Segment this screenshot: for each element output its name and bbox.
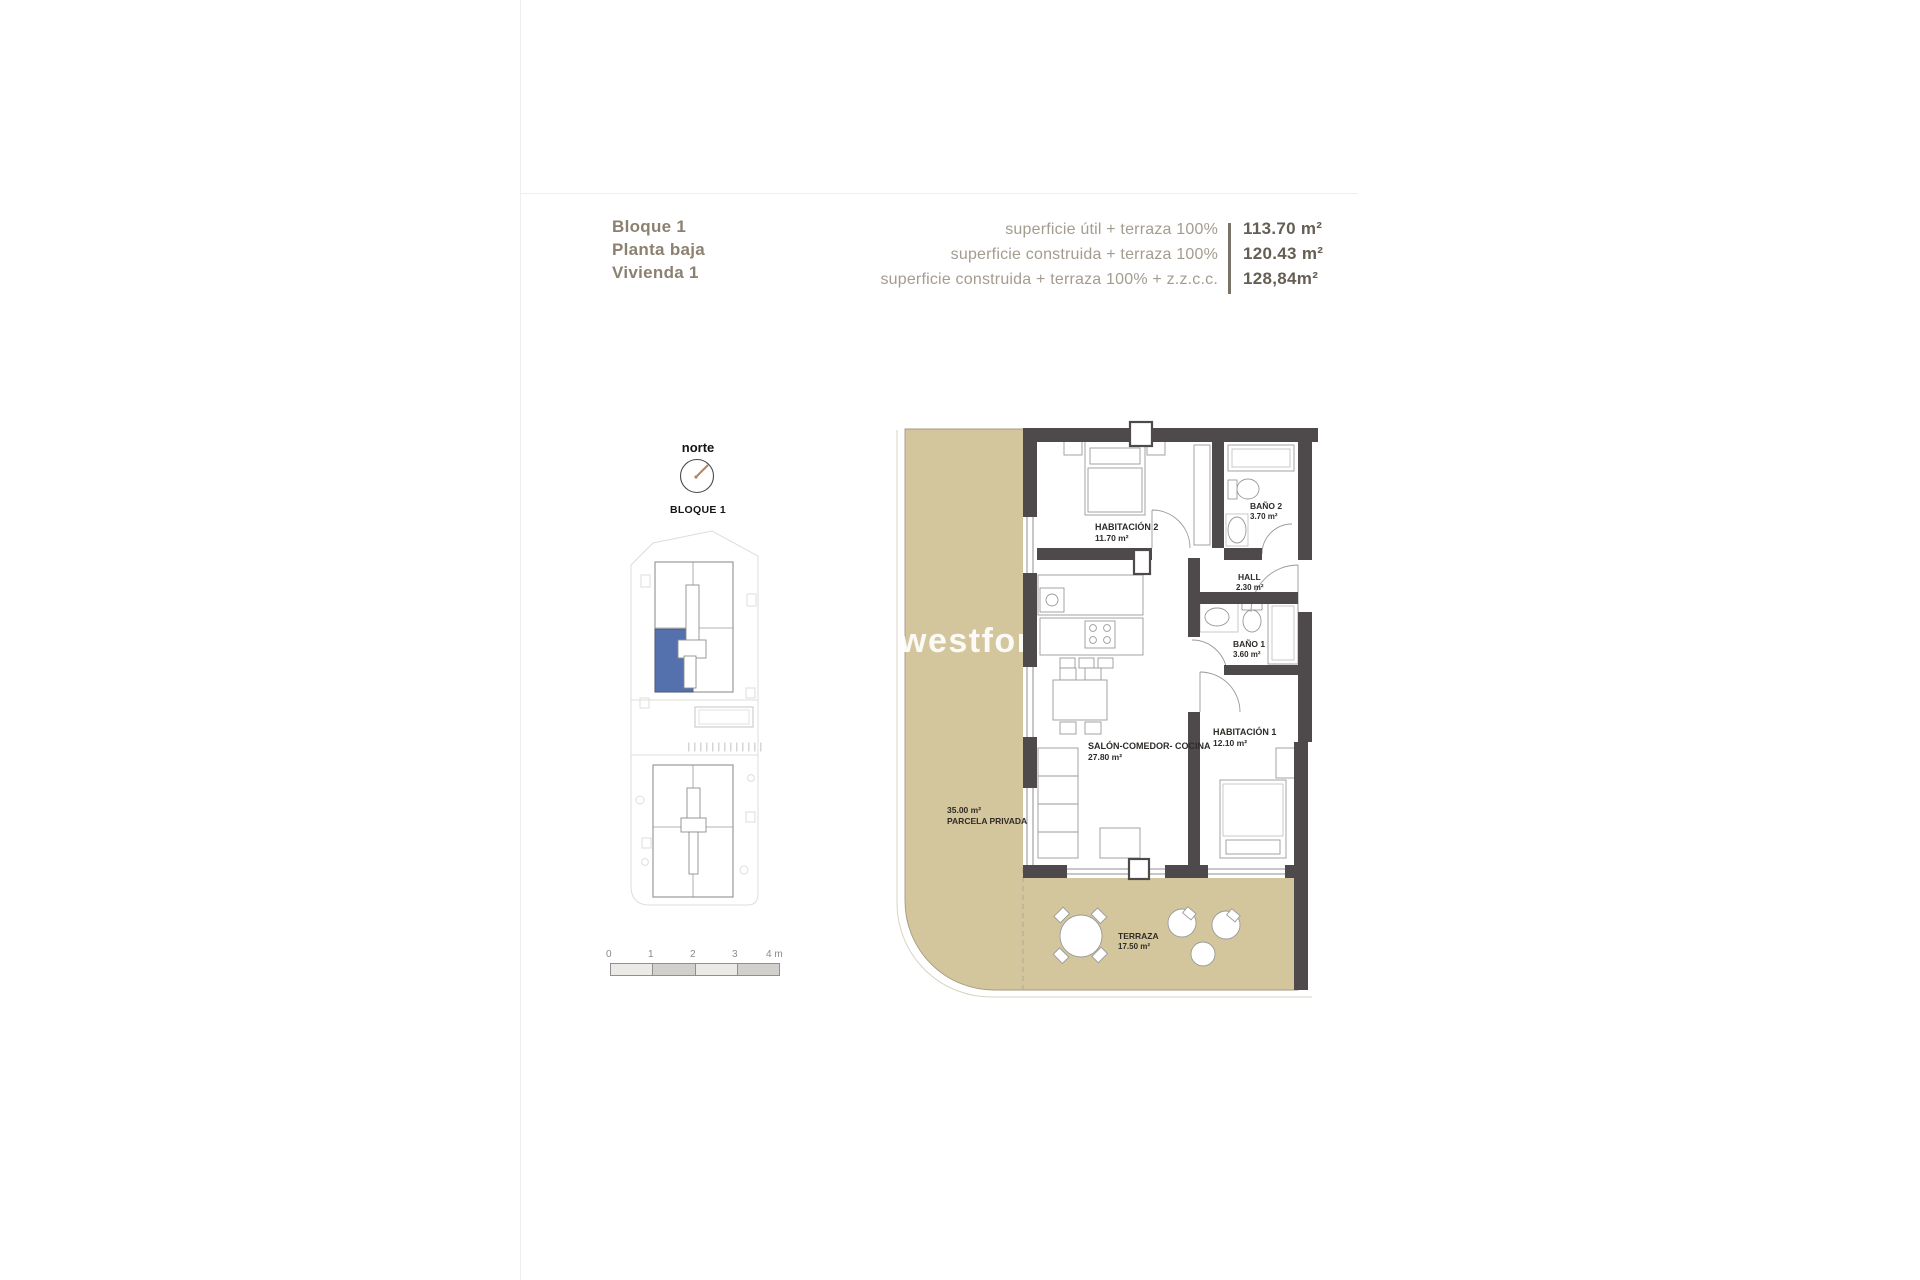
north-label: norte — [678, 440, 718, 455]
siteplan-lower-block — [653, 765, 733, 897]
stool — [1060, 658, 1075, 668]
room-label: SALÓN-COMEDOR- COCINA — [1088, 740, 1211, 751]
surface-value: 128,84m² — [1243, 266, 1323, 291]
stove — [1085, 621, 1115, 648]
room-label: PARCELA PRIVADA — [947, 816, 1027, 826]
scale-tick-label: 3 — [732, 949, 738, 960]
header-unit-info: Bloque 1 Planta baja Vivienda 1 — [612, 215, 705, 284]
block-title: Bloque 1 — [612, 215, 705, 238]
vent-top — [1130, 422, 1152, 446]
scale-bar — [610, 963, 780, 976]
floor-title: Planta baja — [612, 238, 705, 261]
nightstand — [1064, 441, 1082, 455]
page-edge-horizontal-line — [520, 193, 1358, 194]
surface-labels: superficie útil + terraza 100% superfici… — [760, 217, 1218, 292]
floorplan-page: Bloque 1 Planta baja Vivienda 1 superfic… — [0, 0, 1920, 1280]
terrace-lounger — [1191, 942, 1215, 966]
sink-bano1 — [1205, 608, 1229, 626]
stool — [1098, 658, 1113, 668]
room-label: HABITACIÓN 2 — [1095, 521, 1158, 532]
dining-table — [1053, 680, 1107, 720]
room-label: TERRAZA — [1118, 931, 1159, 941]
surface-values: 113.70 m² 120.43 m² 128,84m² — [1243, 216, 1323, 291]
room-area: 35.00 m² — [947, 805, 981, 815]
surface-label: superficie útil + terraza 100% — [760, 217, 1218, 242]
room-label: HABITACIÓN 1 — [1213, 726, 1276, 737]
chair — [1085, 722, 1101, 734]
scale-tick-label: 4 m — [766, 949, 783, 960]
room-area: 17.50 m² — [1118, 942, 1150, 951]
room-area: 27.80 m² — [1088, 752, 1122, 762]
room-area: 3.70 m² — [1250, 512, 1278, 521]
terrace-table — [1060, 915, 1102, 957]
scale-tick-label: 2 — [690, 949, 696, 960]
chair — [1085, 668, 1101, 680]
toilet-tank — [1228, 480, 1237, 499]
room-area: 2.30 m² — [1236, 583, 1264, 592]
siteplan-diagram — [605, 526, 790, 918]
surface-label: superficie construida + terraza 100% + z… — [760, 267, 1218, 292]
surface-label: superficie construida + terraza 100% — [760, 242, 1218, 267]
chair — [1060, 668, 1076, 680]
scale-tick-label: 1 — [648, 949, 654, 960]
shower-bano1 — [1268, 602, 1298, 664]
room-label: HALL — [1238, 572, 1261, 582]
bed-blanket — [1088, 468, 1142, 512]
surface-value: 113.70 m² — [1243, 216, 1323, 241]
scale-tick-label: 0 — [606, 949, 612, 960]
room-area: 12.10 m² — [1213, 738, 1247, 748]
compass-icon — [676, 455, 718, 497]
toilet-bano2 — [1237, 479, 1259, 499]
room-label: BAÑO 1 — [1233, 639, 1265, 649]
room-area: 11.70 m² — [1095, 533, 1129, 543]
bed-pillows — [1226, 840, 1280, 854]
room-label: BAÑO 2 — [1250, 501, 1282, 511]
stool — [1079, 658, 1094, 668]
toilet-bano1 — [1243, 610, 1261, 632]
room-area: 3.60 m² — [1233, 650, 1261, 659]
surface-value: 120.43 m² — [1243, 241, 1323, 266]
apartment-floorplan: westforhomes — [890, 415, 1340, 1010]
page-edge-vertical-line — [520, 0, 521, 1280]
sofa — [1038, 748, 1078, 858]
tv-unit — [1100, 828, 1140, 858]
siteplan-upper-block — [655, 562, 733, 692]
bed-pillows — [1090, 448, 1140, 464]
sink-bano2 — [1228, 517, 1246, 543]
dwelling-title: Vivienda 1 — [612, 261, 705, 284]
kitchen-sink — [1040, 588, 1064, 612]
header-divider — [1228, 223, 1231, 294]
chair — [1060, 722, 1076, 734]
wardrobe-habitacion2 — [1194, 445, 1210, 545]
siteplan-title: BLOQUE 1 — [668, 504, 728, 516]
